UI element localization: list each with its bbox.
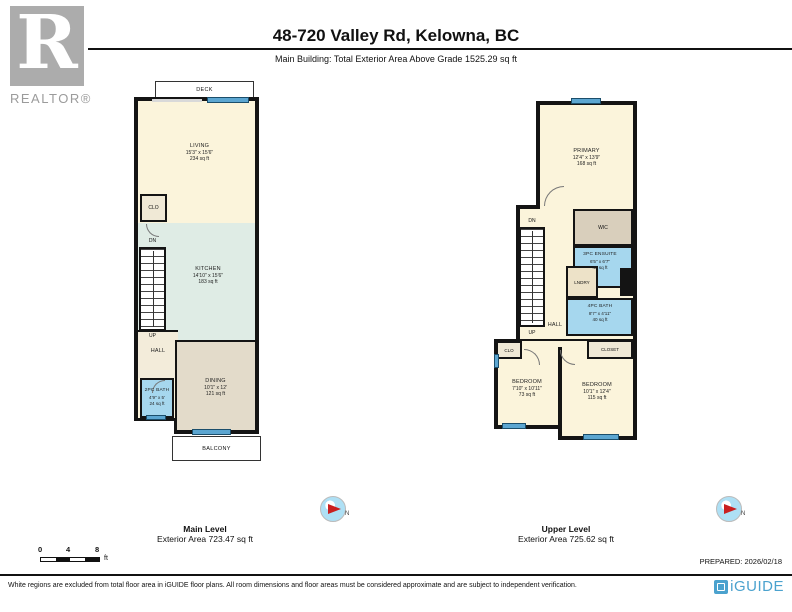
wic-room: WIC	[573, 209, 633, 246]
ensuite-label: 3PC ENSUITE 6'5" x 6'7" 40 sq ft	[570, 252, 630, 272]
balcony-label: BALCONY	[202, 446, 230, 452]
upper-clo-label: CLO	[504, 348, 513, 353]
prepared-date: PREPARED: 2026/02/18	[700, 557, 782, 566]
main-hall-label: HALL	[144, 348, 172, 355]
scale-tick-0: 0	[38, 545, 42, 554]
page-title: 48-720 Valley Rd, Kelowna, BC	[0, 26, 792, 46]
building-step-notch	[134, 418, 177, 434]
caption-title: Upper Level	[466, 524, 666, 534]
disclaimer-text: White regions are excluded from total fl…	[8, 582, 577, 589]
header-divider	[88, 48, 792, 50]
realtor-logo-text: REALTOR®	[10, 91, 96, 106]
wic-label: WIC	[598, 225, 608, 231]
scale-tick-4: 4	[66, 545, 70, 554]
realtor-logo-icon: R	[10, 6, 84, 86]
scale-tick-8: 8	[95, 545, 99, 554]
caption-title: Main Level	[105, 524, 305, 534]
dining-window	[192, 429, 231, 435]
bedroom2-label: BEDROOM 10'1" x 12'4" 115 sq ft	[560, 382, 634, 402]
scale-unit-label: ft	[104, 555, 108, 562]
room-area: 183 sq ft	[158, 279, 258, 286]
floorplan-page: R REALTOR® 48-720 Valley Rd, Kelowna, BC…	[0, 0, 792, 612]
balcony-area: BALCONY	[172, 436, 261, 461]
upper-stairs-dn-label: DN	[519, 218, 545, 224]
kitchen-label: KITCHEN 14'10" x 15'6" 183 sq ft	[158, 266, 258, 286]
compass-n-label: N	[741, 511, 745, 517]
compass-needle	[328, 504, 341, 514]
room-name: HALL	[144, 348, 172, 355]
room-area: 121 sq ft	[176, 391, 255, 398]
wall-block	[620, 268, 635, 296]
scale-bar-segments	[40, 557, 100, 562]
room-area: 24 sq ft	[138, 401, 176, 408]
room-area: 115 sq ft	[560, 395, 634, 402]
living-label: LIVING 15'3" x 15'6" 234 sq ft	[147, 143, 252, 163]
main-bath-label: 2PC BATH 4'9" x 5' 24 sq ft	[138, 388, 176, 408]
upper-compass-icon: N	[716, 496, 742, 522]
main-stairs	[139, 247, 166, 331]
primary-label: PRIMARY 12'4" x 13'9" 168 sq ft	[540, 148, 633, 168]
caption-area: Exterior Area 723.47 sq ft	[105, 534, 305, 544]
room-area: 234 sq ft	[147, 156, 252, 163]
iguide-icon	[714, 580, 728, 594]
bedroom1-side-window	[494, 354, 499, 368]
scale-bar: 0 4 8 ft	[40, 545, 130, 569]
scale-segment	[70, 558, 85, 561]
bedroom1-label: BEDROOM 7'10" x 10'11" 73 sq ft	[494, 379, 560, 399]
living-window	[207, 97, 249, 103]
upper-hall-label: HALL	[538, 322, 572, 329]
upper-bath-label: 4PC BATH 8'7" x 4'11" 40 sq ft	[568, 304, 632, 324]
footer-divider	[0, 574, 792, 576]
scale-segment	[41, 558, 56, 561]
bedroom1-window	[502, 423, 526, 429]
main-closet: CLO	[140, 194, 167, 222]
room-area: 168 sq ft	[540, 161, 633, 168]
upper-stairs-up-label: UP	[519, 330, 545, 336]
upper-clo: CLO	[496, 341, 522, 359]
main-level-caption: Main Level Exterior Area 723.47 sq ft	[105, 524, 305, 544]
room-area: 40 sq ft	[568, 317, 632, 324]
caption-area: Exterior Area 725.62 sq ft	[466, 534, 666, 544]
upper-stairs	[519, 227, 545, 327]
scale-segment	[56, 558, 71, 561]
upper-closet-label: CLOSET	[601, 347, 619, 352]
deck-label: DECK	[196, 87, 212, 93]
bedroom2-window	[583, 434, 619, 440]
room-name: HALL	[538, 322, 572, 329]
compass-n-label: N	[345, 511, 349, 517]
bath-window	[146, 415, 166, 420]
room-area: 73 sq ft	[494, 392, 560, 399]
patio-door-marker	[152, 99, 202, 102]
main-closet-label: CLO	[148, 205, 158, 211]
dining-label: DINING 10'1" x 12' 121 sq ft	[176, 378, 255, 398]
iguide-logo: iGUIDE	[714, 578, 784, 595]
primary-window	[571, 98, 601, 104]
upper-closet: CLOSET	[587, 340, 633, 359]
page-subtitle: Main Building: Total Exterior Area Above…	[0, 54, 792, 64]
main-stairs-dn-label: DN	[139, 238, 166, 244]
scale-segment	[85, 558, 100, 561]
main-compass-icon: N	[320, 496, 346, 522]
upper-level-caption: Upper Level Exterior Area 725.62 sq ft	[466, 524, 666, 544]
laundry-label: LNDRY	[574, 280, 590, 285]
compass-needle	[724, 504, 737, 514]
iguide-logo-text: iGUIDE	[730, 578, 784, 595]
room-area: 40 sq ft	[570, 265, 630, 272]
main-stairs-up-label: UP	[139, 333, 166, 339]
